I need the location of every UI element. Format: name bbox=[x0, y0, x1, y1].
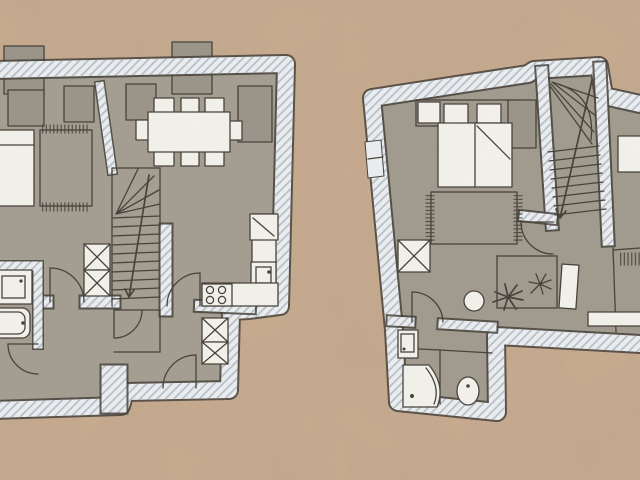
round-stool bbox=[464, 291, 484, 311]
nightstand bbox=[418, 102, 440, 123]
floor-plan-page bbox=[0, 0, 640, 480]
washbasin bbox=[398, 330, 418, 358]
sideboard bbox=[238, 86, 272, 142]
bed bbox=[0, 130, 34, 206]
side-bed bbox=[618, 136, 640, 172]
dining-table bbox=[148, 112, 230, 152]
chimney-flue bbox=[8, 90, 44, 126]
dining-chair bbox=[181, 98, 199, 113]
pillow bbox=[444, 104, 468, 124]
dining-chair bbox=[205, 98, 224, 113]
wardrobe bbox=[84, 244, 110, 296]
stove bbox=[202, 284, 232, 306]
fridge-cabinet bbox=[250, 214, 278, 240]
dining-chair bbox=[154, 98, 174, 113]
window-bench bbox=[588, 312, 640, 326]
floorplan-drawing bbox=[0, 0, 640, 480]
wall-cabinet bbox=[64, 86, 94, 122]
bathroom-ground bbox=[0, 270, 32, 338]
dining-chair bbox=[181, 151, 199, 166]
hall-cabinets bbox=[202, 318, 228, 364]
wardrobe bbox=[398, 240, 430, 272]
toilet bbox=[457, 377, 479, 405]
dining-chair bbox=[205, 151, 224, 166]
open-door-leaf bbox=[559, 264, 579, 309]
bathtub bbox=[0, 308, 30, 338]
washbasin-counter bbox=[0, 270, 32, 304]
dining-chair bbox=[154, 151, 174, 166]
double-bed bbox=[438, 123, 512, 187]
pillow bbox=[477, 104, 501, 123]
